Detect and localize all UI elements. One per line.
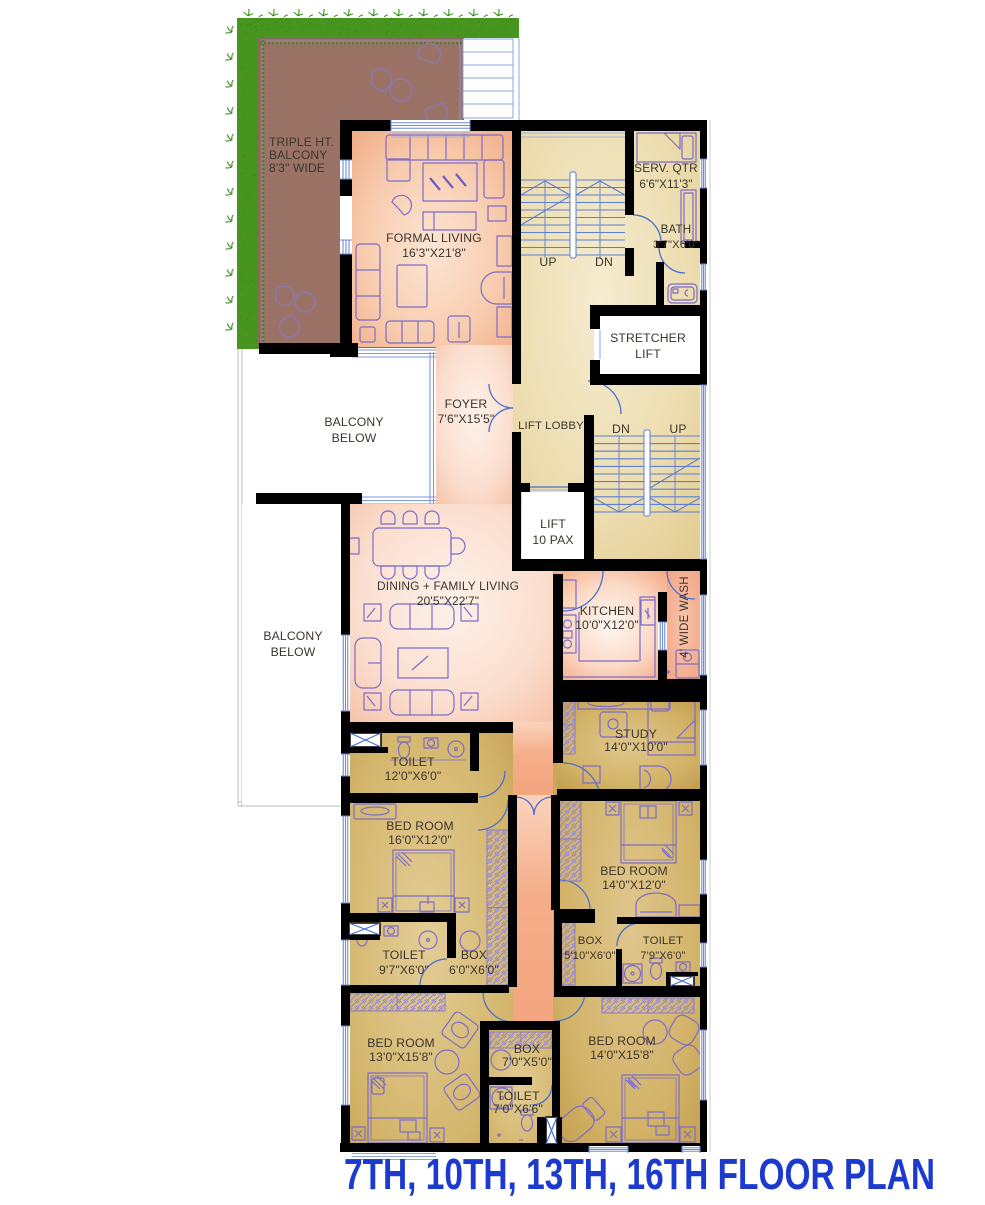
svg-text:LIFT: LIFT bbox=[540, 517, 566, 531]
svg-text:BALCONY: BALCONY bbox=[263, 629, 322, 643]
svg-text:DINING + FAMILY LIVING: DINING + FAMILY LIVING bbox=[377, 579, 519, 593]
svg-text:TRIPLE HT.: TRIPLE HT. bbox=[269, 135, 334, 149]
svg-text:UP: UP bbox=[669, 422, 686, 436]
svg-text:13'0"X15'8": 13'0"X15'8" bbox=[369, 1050, 433, 1064]
svg-text:STUDY: STUDY bbox=[615, 727, 657, 741]
svg-text:BELOW: BELOW bbox=[332, 431, 377, 445]
svg-text:10 PAX: 10 PAX bbox=[532, 533, 573, 547]
svg-text:20'5"X22'7": 20'5"X22'7" bbox=[417, 594, 479, 608]
svg-text:BOX: BOX bbox=[514, 1042, 540, 1056]
svg-text:DN: DN bbox=[595, 255, 613, 269]
svg-text:BOX: BOX bbox=[578, 935, 603, 947]
svg-text:BED ROOM: BED ROOM bbox=[367, 1036, 435, 1050]
svg-text:TOILET: TOILET bbox=[643, 935, 684, 947]
svg-text:BED ROOM: BED ROOM bbox=[588, 1034, 656, 1048]
svg-text:8'3" WIDE: 8'3" WIDE bbox=[269, 161, 325, 175]
svg-text:7'0"X6'6": 7'0"X6'6" bbox=[493, 1102, 543, 1116]
svg-text:BELOW: BELOW bbox=[271, 645, 316, 659]
svg-text:DN: DN bbox=[612, 422, 630, 436]
svg-text:14'0"X15'8": 14'0"X15'8" bbox=[590, 1048, 654, 1062]
svg-text:7'6"X15'5": 7'6"X15'5" bbox=[438, 412, 495, 426]
svg-text:16'0"X12'0": 16'0"X12'0" bbox=[388, 833, 452, 847]
svg-text:5'10"X6'0": 5'10"X6'0" bbox=[564, 950, 615, 962]
svg-text:LIFT LOBBY: LIFT LOBBY bbox=[518, 420, 584, 432]
svg-text:BOX: BOX bbox=[461, 948, 487, 962]
svg-text:12'0"X6'0": 12'0"X6'0" bbox=[385, 769, 442, 783]
svg-text:SERV. QTR: SERV. QTR bbox=[634, 161, 698, 175]
svg-text:KITCHEN: KITCHEN bbox=[580, 604, 635, 618]
svg-text:LIFT: LIFT bbox=[635, 347, 661, 361]
svg-text:BALCONY: BALCONY bbox=[324, 415, 383, 429]
svg-text:TOILET: TOILET bbox=[391, 755, 435, 769]
svg-text:16'3"X21'8": 16'3"X21'8" bbox=[402, 246, 466, 260]
svg-text:6'0"X6'0": 6'0"X6'0" bbox=[449, 963, 499, 977]
svg-text:9'7"X6'0": 9'7"X6'0" bbox=[379, 963, 429, 977]
svg-text:FORMAL LIVING: FORMAL LIVING bbox=[386, 231, 482, 245]
svg-text:BATH: BATH bbox=[661, 223, 692, 236]
svg-text:10'0"X12'0": 10'0"X12'0" bbox=[575, 618, 639, 632]
svg-text:14'0"X12'0": 14'0"X12'0" bbox=[602, 878, 666, 892]
svg-text:14'0"X10'0": 14'0"X10'0" bbox=[604, 740, 668, 754]
svg-text:BED ROOM: BED ROOM bbox=[386, 819, 454, 833]
svg-text:7'9"X6'0": 7'9"X6'0" bbox=[640, 950, 685, 962]
svg-text:3'7"X6'0": 3'7"X6'0" bbox=[653, 239, 699, 251]
svg-text:TOILET: TOILET bbox=[496, 1089, 540, 1103]
svg-text:BED ROOM: BED ROOM bbox=[600, 864, 668, 878]
svg-text:FOYER: FOYER bbox=[445, 397, 488, 411]
svg-text:7TH, 10TH, 13TH, 16TH FLOOR P: 7TH, 10TH, 13TH, 16TH FLOOR PLAN bbox=[344, 1150, 935, 1199]
svg-text:6'6"X11'3": 6'6"X11'3" bbox=[639, 178, 692, 191]
svg-text:UP: UP bbox=[539, 255, 556, 269]
svg-text:TOILET: TOILET bbox=[382, 948, 426, 962]
svg-text:4' WIDE WASH: 4' WIDE WASH bbox=[679, 576, 691, 657]
svg-text:BALCONY: BALCONY bbox=[269, 148, 327, 162]
svg-text:STRETCHER: STRETCHER bbox=[610, 331, 686, 345]
svg-text:7'0"X5'0": 7'0"X5'0" bbox=[502, 1055, 552, 1069]
